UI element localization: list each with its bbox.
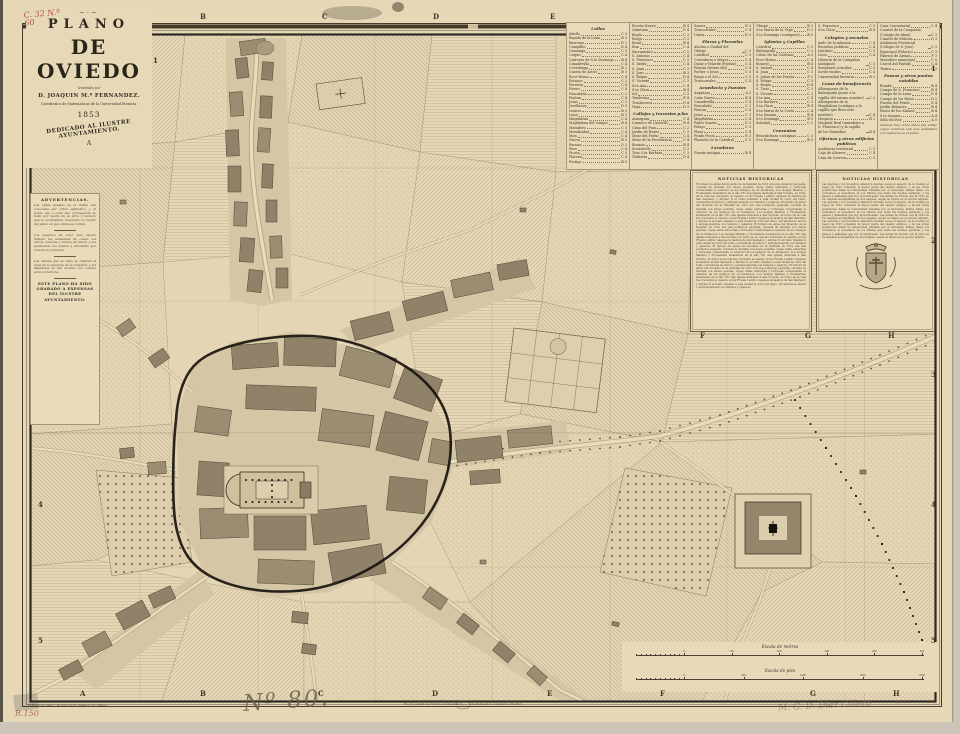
grid-label-C: C [322,12,328,21]
advertencias-paragraph: Las calles puestas en el indice van colo… [34,204,96,227]
index-section-header: Colegios y escuelas [818,35,875,40]
grid-label-D: D [432,689,438,698]
grid-label-4: 4 [931,500,936,509]
grid-label-G: G [810,689,816,698]
index-column-6: Casa ConsistorialC 4Cuartel de la Compañ… [877,23,939,169]
engraver-credit: Grabado el plano y la letra por R. Alabe… [28,703,108,707]
index-entry: VegaD 3 [632,105,689,109]
divider [54,256,76,257]
index-column-5: S. FranciscoC 3S.ta ClaraB 4Colegios y e… [815,23,877,169]
property-credit: Es propiedad del Ilustre Ayuntamiento. —… [393,702,533,706]
author-name: D. JOAQUIN M.ª FERNANDEZ. [26,93,152,99]
notes-body: El Oviedo de antes del incendio de la Na… [696,183,806,289]
index-entry: PostigoB 5 [569,160,627,164]
index-section-header: Paseos y otros puntos notables [880,73,937,83]
grid-label-A: A [80,689,85,698]
advertencias-panel: ADVERTENCIAS. Las calles puestas en el i… [30,193,100,425]
advertencias-paragraph: Las alturas que se citan se refieren al … [34,260,96,275]
index-entry: Audiencia Provincial (Colegio de S. Jose… [880,41,937,50]
grid-label-1: 1 [931,64,936,73]
pencil-shelf-mark: R.150 [15,709,39,718]
index-entry: TrascorralesC 4 [694,79,751,83]
index-entry: Albergueria de la Balesquida (junto a la… [818,87,875,100]
engraving-note: ESTE PLANO HA SIDO GRABADO A EXPENSAS DE… [34,282,96,303]
index-entry: Universidad literariaB 3 [818,75,875,79]
index-column-3: SamesE 3TrascorralesC 4UnionD 3Plazas y … [691,23,753,169]
index-entry: Albergueria de la Magdalena (contigua a … [818,100,875,117]
byline-small: levantado por [26,86,152,90]
index-entry: S.to Domingo (contiguos)B 5 [756,33,813,37]
advertencias-title: ADVERTENCIAS. [34,197,96,202]
index-entry: SoledadC 2 [756,121,813,125]
grid-label-E: E [547,689,552,698]
grid-label-D: D [433,12,439,21]
scale-label: Escala de pies [622,666,938,673]
historical-notes-panel-2: NOTICIAS HISTORICAS Las guerras y los in… [816,170,935,332]
index-entry: TeatroC 3 [880,67,937,71]
index-section-header: Acueducto y Fuentes [694,85,751,90]
grid-label-2: 2 [931,236,936,245]
index-entry: S.to DomingoB 5 [756,138,813,142]
cathedral-plan [224,466,318,514]
grid-label-5: 5 [931,636,936,645]
scale-label: Escala de metros [622,642,938,649]
index-entry: Casa de CorreosC 3 [818,156,875,160]
index-section-header: Iglesias y Capillas [756,39,813,44]
index-section-header: Casas de beneficencia [818,81,875,86]
map-title: DE OVIEDO [26,35,152,83]
grid-label-E: E [550,12,555,21]
scanned-map-photo: { "sheet": { "title_block": { "flourish"… [0,0,960,734]
divider [54,278,76,279]
index-entry: Fuente antiguaB 4 [694,151,751,155]
index-entry: Cuartel de la Compañia (Colegio de idem)… [880,28,937,37]
index-entry: S.ta ClaraB 4 [818,28,875,32]
grid-label-1: 1 [153,56,158,65]
scale-metros: Escala de metros 0100200300400500 [622,642,938,666]
index-section-header: Oficinas y otros edificios publicos [818,136,875,146]
index-entry: VidrieriaD 4 [632,155,689,159]
ink-blot [392,2,404,12]
scale-bars-panel: Escala de metros 0100200300400500 Escala… [622,642,938,692]
author-role: Catedratico de Matematicas de la Univers… [26,102,152,106]
notes-title: NOTICIAS HISTORICAS [822,176,929,181]
index-section-header: Calles [569,26,627,31]
formal-garden [505,328,605,413]
grid-label-4: 4 [38,500,43,509]
grid-label-H: H [888,331,895,340]
ink-smudge [322,6,382,20]
index-entry: Plazuela de la CatedralC 3 [694,138,751,142]
grid-label-C: C [318,689,324,698]
index-section-header: Plazas y Plazuelas [694,39,751,44]
coat-of-arms-icon [850,241,902,293]
index-entry: Libreria de la Compañia (antiguos)C 3 [818,58,875,67]
grid-label-G: G [805,331,811,340]
pond [256,41,274,55]
index-entry: Silla del ReyA 5 [880,118,937,122]
index-entry: UnionD 3 [694,33,751,37]
historical-notes-panel-1: NOTICIAS HISTORICAS El Oviedo de antes d… [690,170,812,332]
index-column-2: Puerta NuevaB 4QuintanaD 4ReglaC 3RiegoC… [629,23,691,169]
divider [54,230,76,231]
notes-title: NOTICIAS HISTORICAS [696,176,806,181]
index-column-4: ObispoB 3S.ta Maria de la VegaD 2S.to Do… [753,23,815,169]
factory-complex [735,494,811,568]
index-entry: Alcoba o Ciudad del ObispoC 3 [694,45,751,54]
grid-label-H: H [893,689,900,698]
index-column-1: CallesAbelloC 3Bajada de la LunaB 3Barre… [567,23,629,169]
map-year: 1853 [26,110,152,119]
grid-label-F: F [660,689,665,698]
grid-label-F: F [700,331,705,340]
campo-san-francisco-park [96,470,192,576]
index-entry: Hospital Real (inmediato a S. Francisco)… [818,121,875,134]
advertencias-paragraph: Los espacios de color mas oscuro indican… [34,234,96,253]
index-note: Ademas hay otros sitios del andar cuyos … [880,124,937,136]
index-section-header: Conventos [756,128,813,133]
index-section-header: Lavaderos [694,145,751,150]
scale-pies: Escala de pies 0500100015002000 [622,666,938,690]
street-index-panel: CallesAbelloC 3Bajada de la LunaB 3Barre… [566,22,940,170]
grid-label-5: 5 [38,636,43,645]
grid-label-3: 3 [931,370,936,379]
title-cartouche: ~·~ PLANO DE OVIEDO levantado por D. JOA… [26,10,152,168]
index-section-header: Callejas y travesias p.les [632,111,689,116]
notes-body: Las guerras y los incendios alteraron mu… [822,183,929,239]
map-sheet: ~·~ PLANO DE OVIEDO levantado por D. JOA… [0,0,960,734]
grid-label-B: B [200,689,206,698]
grid-label-B: B [200,12,206,21]
